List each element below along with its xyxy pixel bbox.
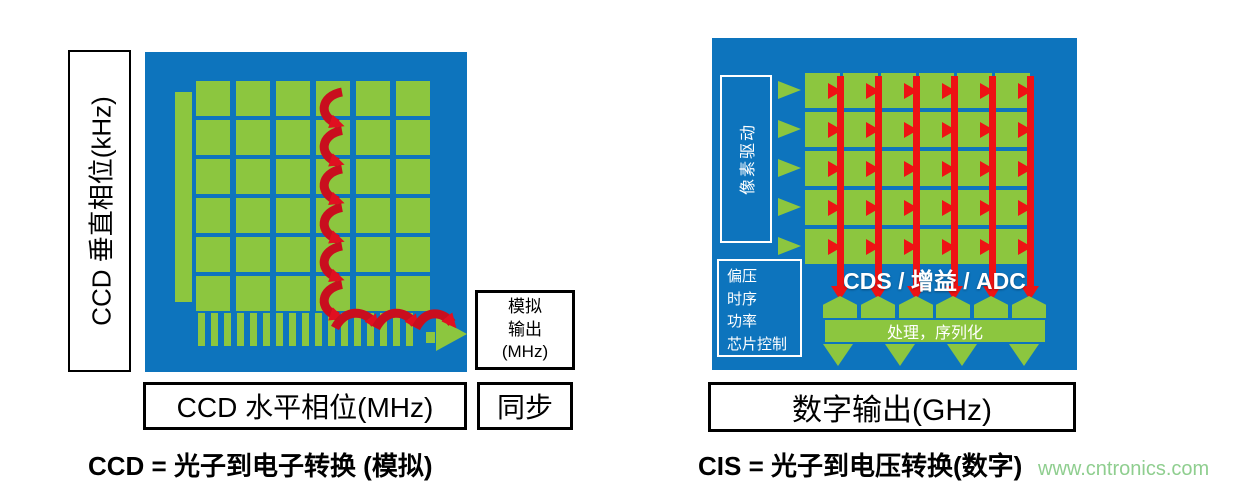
ccd-register-stripe xyxy=(302,313,309,346)
ccd-pixel-cell xyxy=(236,81,270,116)
adc-block-icon xyxy=(974,296,1008,318)
watermark: www.cntronics.com xyxy=(1038,458,1209,481)
ccd-pixel-cell xyxy=(276,237,310,272)
ccd-register-stripe xyxy=(237,313,244,346)
ccd-register-stripe xyxy=(224,313,231,346)
adc-block-icon xyxy=(936,296,970,318)
digital-output-arrow-icon xyxy=(823,344,853,366)
control-line-power: 功率 xyxy=(727,311,800,334)
ccd-pixel-cell xyxy=(356,237,390,272)
ccd-vs-cis-diagram: CCD 垂直相位(kHz) xyxy=(0,0,1238,491)
ccd-pixel-cell xyxy=(276,276,310,311)
cis-caption: CIS = 光子到电压转换(数字) xyxy=(698,446,1022,483)
control-line-bias: 偏压 xyxy=(727,266,800,289)
ccd-pixel-cell xyxy=(196,81,230,116)
ccd-pixel-cell xyxy=(316,276,350,311)
ccd-pixel-cell xyxy=(196,276,230,311)
ccd-register-stripe xyxy=(198,313,205,346)
column-readout-line xyxy=(913,76,920,288)
analog-output-line3: (MHz) xyxy=(502,341,548,364)
ccd-output-arrow-icon xyxy=(436,317,467,351)
ccd-pixel-cell xyxy=(236,276,270,311)
adc-block-icon xyxy=(1012,296,1046,318)
ccd-pixel-cell xyxy=(196,120,230,155)
ccd-pixel-cell xyxy=(196,237,230,272)
ccd-pixel-cell xyxy=(316,159,350,194)
row-driver-arrow-icon xyxy=(778,120,801,138)
ccd-vertical-axis-label: CCD 垂直相位(kHz) xyxy=(81,96,118,326)
ccd-pixel-cell xyxy=(276,120,310,155)
ccd-pixel-cell xyxy=(316,198,350,233)
processing-serializer-bar: 处理，序列化 xyxy=(825,320,1045,342)
ccd-pixel-cell xyxy=(396,81,430,116)
ccd-register-stripe xyxy=(354,313,361,346)
column-readout-line xyxy=(989,76,996,288)
ccd-pixel-cell xyxy=(236,237,270,272)
row-driver-arrow-icon xyxy=(778,159,801,177)
cis-sensor-panel: 像素驱动 偏压 时序 功率 芯片控制 CDS / 增益 / ADC 处理，序列化 xyxy=(712,38,1077,370)
ccd-pixel-cell xyxy=(356,276,390,311)
analog-output-line1: 模拟 xyxy=(508,296,542,319)
ccd-pixel-cell xyxy=(276,159,310,194)
processing-label: 处理，序列化 xyxy=(887,319,983,343)
ccd-pixel-cell xyxy=(236,120,270,155)
ccd-register-stripe xyxy=(315,313,322,346)
control-line-chip: 芯片控制 xyxy=(727,334,800,357)
ccd-pixel-cell xyxy=(396,237,430,272)
ccd-register-stripe xyxy=(276,313,283,346)
row-driver-arrow-icon xyxy=(778,237,801,255)
ccd-pixel-cell xyxy=(276,198,310,233)
ccd-pixel-cell xyxy=(316,81,350,116)
ccd-register-stripe xyxy=(406,313,413,346)
ccd-register-stripe xyxy=(328,313,335,346)
bias-timing-control-box: 偏压 时序 功率 芯片控制 xyxy=(717,259,802,357)
ccd-register-stripe xyxy=(393,313,400,346)
control-line-timing: 时序 xyxy=(727,289,800,312)
sync-label: 同步 xyxy=(497,386,553,426)
digital-output-arrow-icon xyxy=(885,344,915,366)
ccd-output-node xyxy=(426,332,435,343)
ccd-pixel-cell xyxy=(196,159,230,194)
pixel-drive-box: 像素驱动 xyxy=(720,75,772,243)
column-readout-line xyxy=(837,76,844,288)
ccd-pixel-cell xyxy=(396,198,430,233)
ccd-pixel-cell xyxy=(236,159,270,194)
column-readout-line xyxy=(951,76,958,288)
ccd-pixel-cell xyxy=(196,198,230,233)
ccd-pixel-cell xyxy=(316,237,350,272)
ccd-pixel-cell xyxy=(316,120,350,155)
ccd-register-stripe xyxy=(289,313,296,346)
ccd-register-stripe xyxy=(341,313,348,346)
column-readout-line xyxy=(875,76,882,288)
analog-output-box: 模拟 输出 (MHz) xyxy=(475,290,575,370)
ccd-pixel-cell xyxy=(236,198,270,233)
ccd-sensor-panel xyxy=(145,52,467,372)
ccd-pixel-cell xyxy=(396,276,430,311)
ccd-vertical-register-bar xyxy=(175,92,192,302)
ccd-vertical-axis-box: CCD 垂直相位(kHz) xyxy=(68,50,131,372)
ccd-pixel-cell xyxy=(356,81,390,116)
digital-output-arrow-icon xyxy=(1009,344,1039,366)
ccd-horizontal-axis-box: CCD 水平相位(MHz) xyxy=(143,382,467,430)
pixel-drive-label: 像素驱动 xyxy=(734,123,758,195)
adc-block-icon xyxy=(823,296,857,318)
row-driver-arrow-icon xyxy=(778,81,801,99)
ccd-register-stripe xyxy=(380,313,387,346)
ccd-register-stripe xyxy=(367,313,374,346)
ccd-register-stripe xyxy=(211,313,218,346)
analog-output-line2: 输出 xyxy=(508,319,542,342)
ccd-caption: CCD = 光子到电子转换 (模拟) xyxy=(88,446,433,483)
digital-output-arrow-icon xyxy=(947,344,977,366)
ccd-pixel-cell xyxy=(276,81,310,116)
ccd-register-stripe xyxy=(250,313,257,346)
column-readout-line xyxy=(1027,76,1034,288)
digital-output-label: 数字输出(GHz) xyxy=(792,385,992,429)
cds-gain-adc-label: CDS / 增益 / ADC xyxy=(817,262,1052,296)
ccd-pixel-cell xyxy=(356,159,390,194)
adc-block-icon xyxy=(899,296,933,318)
adc-block-icon xyxy=(861,296,895,318)
ccd-pixel-cell xyxy=(356,198,390,233)
row-driver-arrow-icon xyxy=(778,198,801,216)
ccd-pixel-cell xyxy=(396,159,430,194)
digital-output-box: 数字输出(GHz) xyxy=(708,382,1076,432)
ccd-pixel-cell xyxy=(356,120,390,155)
ccd-horizontal-axis-label: CCD 水平相位(MHz) xyxy=(177,386,434,426)
ccd-pixel-cell xyxy=(396,120,430,155)
ccd-register-stripe xyxy=(263,313,270,346)
sync-box: 同步 xyxy=(477,382,573,430)
